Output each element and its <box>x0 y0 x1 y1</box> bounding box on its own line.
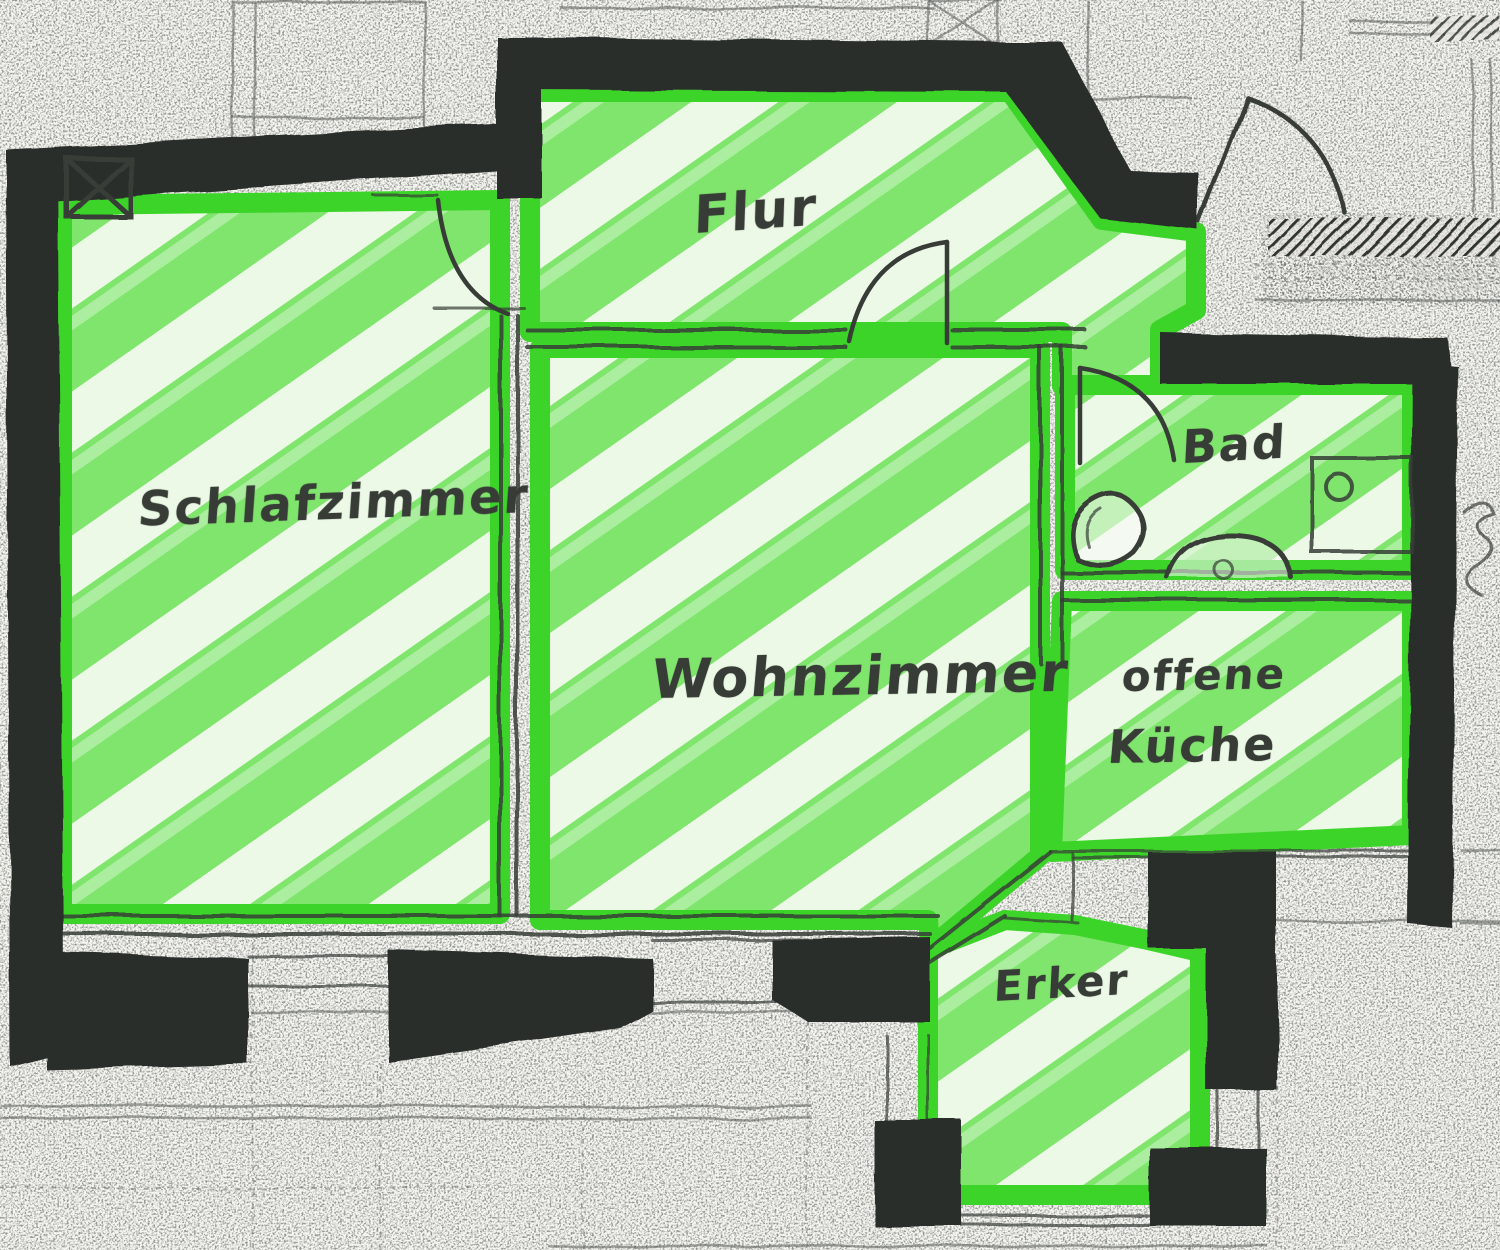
room-label-kueche-line2: Küche <box>1106 717 1280 774</box>
room-label-wohnzimmer: Wohnzimmer <box>649 641 1072 711</box>
window-bar <box>46 952 248 1070</box>
outer-wall-top-flur <box>496 36 1014 92</box>
erker-pillar-bottom-left <box>874 1120 962 1226</box>
outer-wall-right <box>1408 362 1458 928</box>
room-label-erker: Erker <box>993 955 1131 1011</box>
bad-top-wall <box>1160 332 1452 384</box>
window-bar <box>772 937 930 1022</box>
scanned-floor-plan: Flur Schlafzimmer Wohnzimmer Bad offene … <box>0 0 1500 1250</box>
dense-scan-texture <box>1262 214 1500 306</box>
outer-wall-left <box>6 150 64 1066</box>
room-label-bad: Bad <box>1181 414 1289 474</box>
erker-pillar-bottom-right <box>1150 1148 1266 1226</box>
toilet-icon <box>1073 495 1144 566</box>
room-label-flur: Flur <box>693 177 819 246</box>
room-label-kueche-line1: offene <box>1120 649 1289 701</box>
wall-hatch <box>1430 16 1500 42</box>
